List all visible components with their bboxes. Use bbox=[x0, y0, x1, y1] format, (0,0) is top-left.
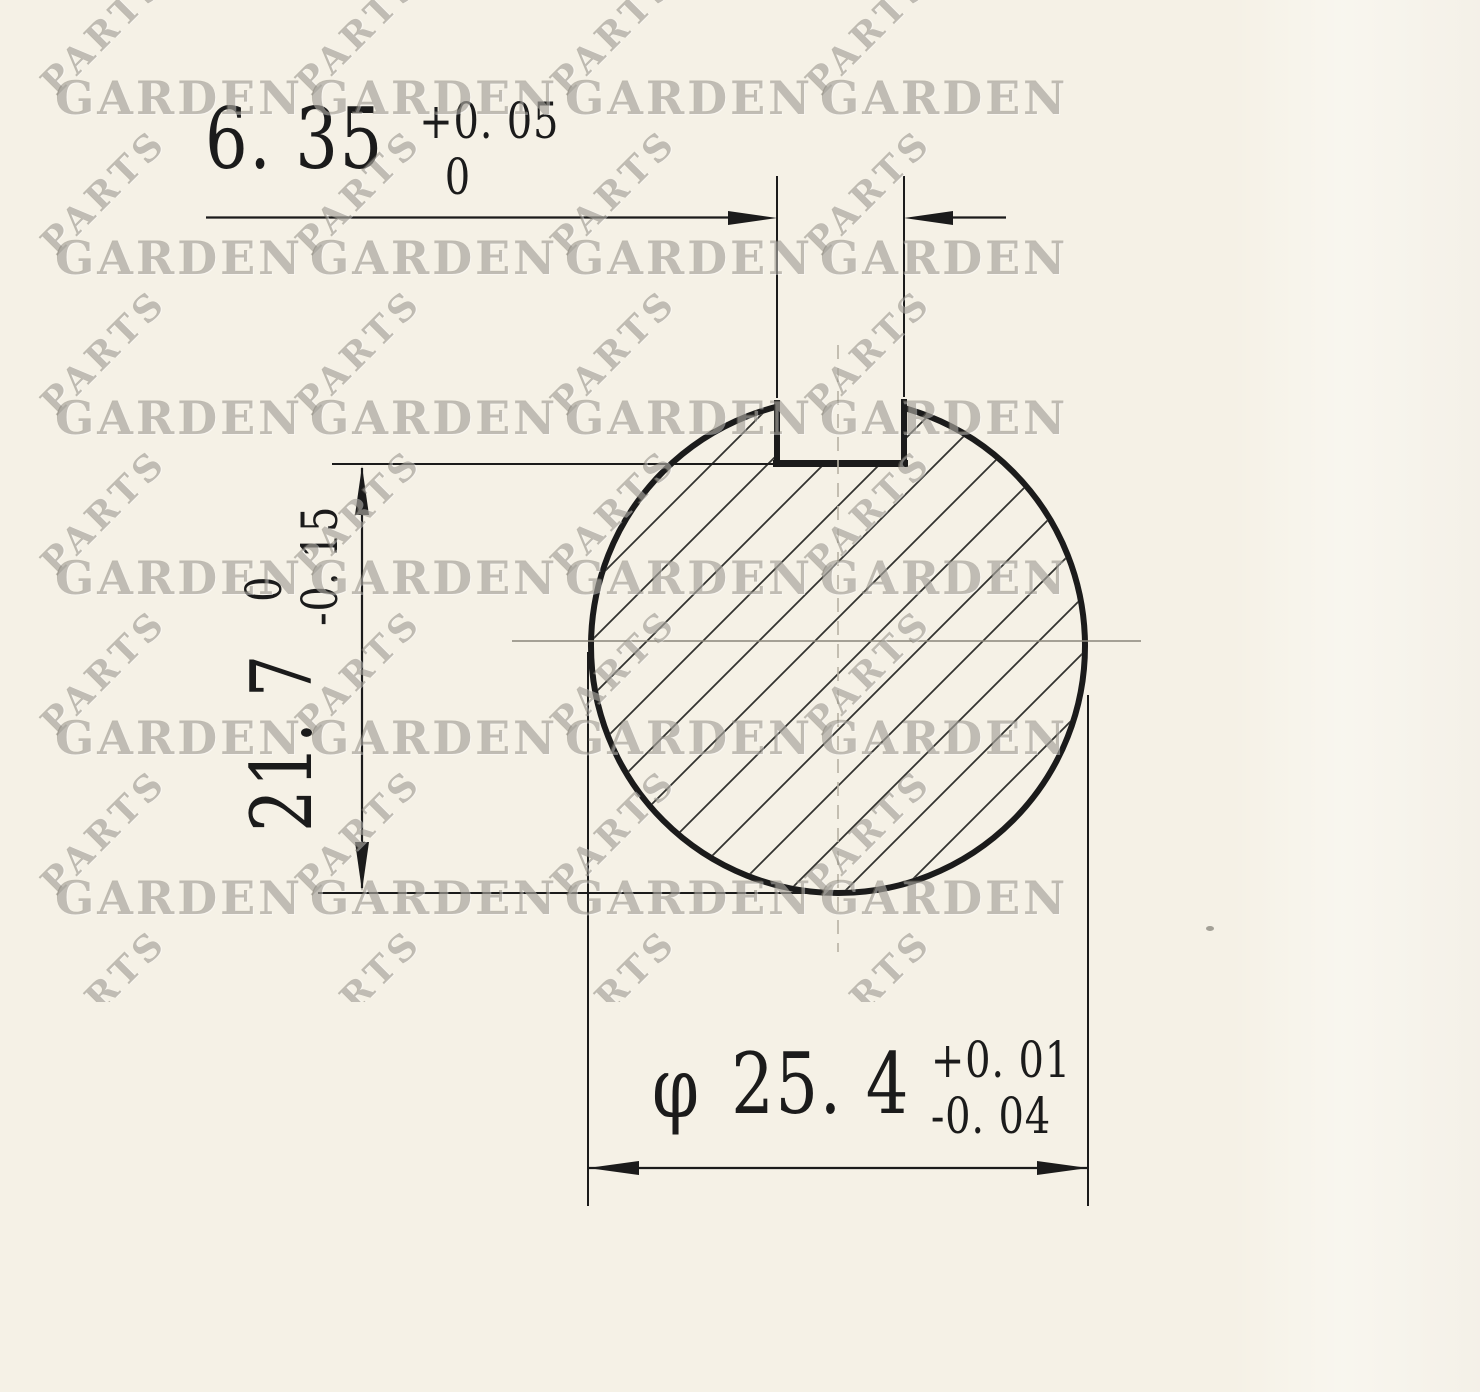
arrowhead-right-icon bbox=[1037, 1161, 1088, 1175]
arrowhead-right-icon bbox=[728, 211, 777, 225]
dim-diameter-tolerances: +0. 01 -0. 04 bbox=[931, 1032, 1071, 1144]
dim-keyway-width: 6. 35 +0. 05 0 bbox=[205, 97, 559, 205]
tolerance-lower: 0 bbox=[419, 149, 559, 205]
tolerance-lower: -0. 15 bbox=[292, 506, 348, 626]
tolerance-lower: -0. 04 bbox=[931, 1088, 1071, 1144]
scanned-drawing-page: 6. 35 +0. 05 0 21. 7 0 -0. 15 φ 25. 4 +0… bbox=[0, 0, 1480, 1392]
dim-diameter-value: 25. 4 bbox=[731, 1042, 910, 1126]
dim-keyway-width-value: 6. 35 bbox=[205, 97, 384, 181]
arrowhead-left-icon bbox=[588, 1161, 639, 1175]
arrowhead-left-icon bbox=[904, 211, 953, 225]
dim-depth: 21. 7 0 -0. 15 bbox=[210, 532, 334, 832]
keyway-slot-interior bbox=[780, 386, 901, 462]
scan-speck bbox=[1206, 926, 1214, 931]
dim-depth-tolerances: 0 -0. 15 bbox=[236, 506, 348, 626]
arrowhead-down-icon bbox=[355, 842, 369, 891]
tolerance-upper: +0. 01 bbox=[931, 1032, 1071, 1088]
dim-diameter: φ 25. 4 +0. 01 -0. 04 bbox=[652, 1042, 1071, 1144]
tolerance-upper: +0. 05 bbox=[419, 93, 559, 149]
dim-depth-text: 21. 7 0 -0. 15 bbox=[240, 506, 348, 832]
dim-keyway-width-tolerances: +0. 05 0 bbox=[419, 93, 559, 205]
dim-depth-value: 21. 7 bbox=[240, 653, 324, 832]
diameter-symbol: φ bbox=[652, 1046, 699, 1130]
arrowhead-up-icon bbox=[355, 466, 369, 515]
tolerance-upper: 0 bbox=[236, 506, 292, 626]
